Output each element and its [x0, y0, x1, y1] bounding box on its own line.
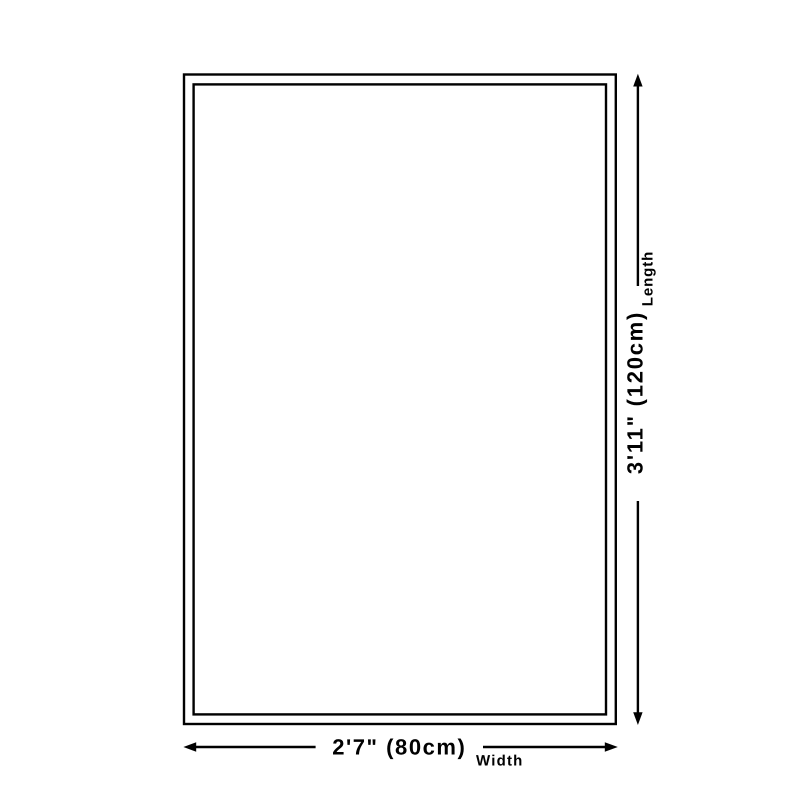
svg-text:3'11" (120cm): 3'11" (120cm) [622, 311, 647, 474]
svg-text:Length: Length [640, 251, 657, 306]
svg-text:2'7" (80cm): 2'7" (80cm) [332, 734, 466, 759]
svg-text:Width: Width [476, 753, 524, 770]
